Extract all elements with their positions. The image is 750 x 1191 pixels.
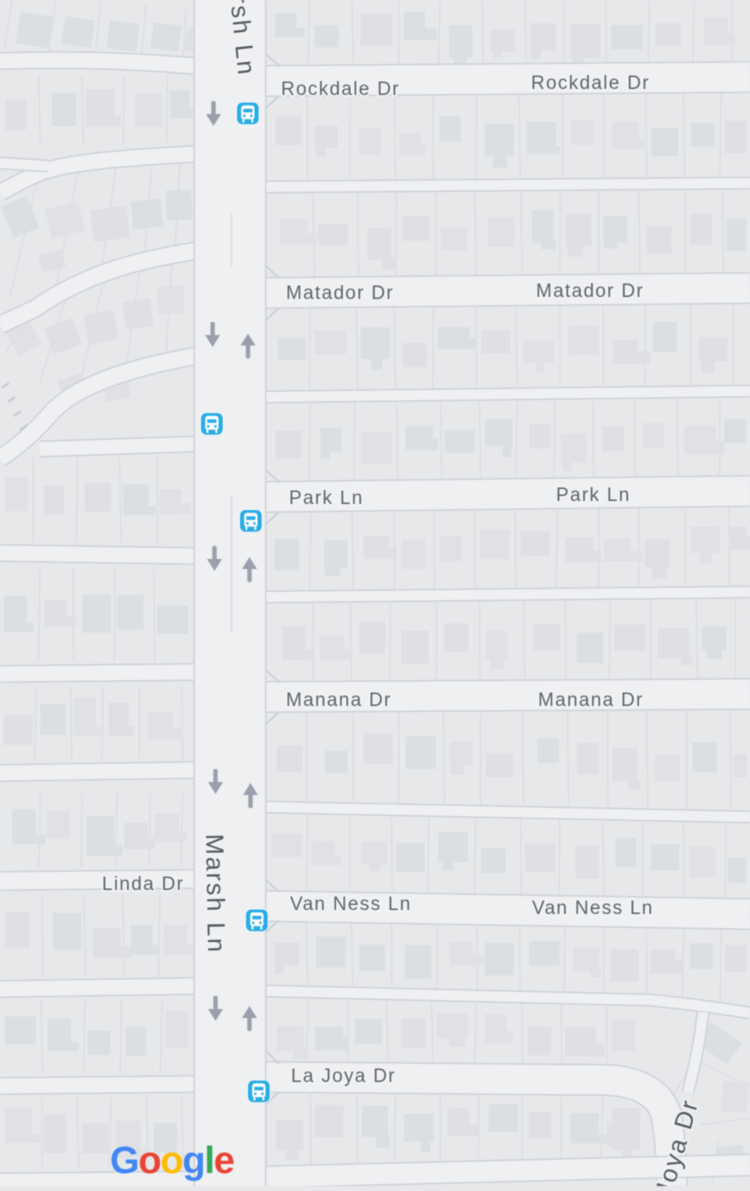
svg-text:Rockdale Dr: Rockdale Dr: [281, 79, 400, 100]
svg-text:La Joya Dr: La Joya Dr: [291, 1066, 396, 1087]
svg-text:Park Ln: Park Ln: [289, 488, 364, 509]
svg-text:Rockdale Dr: Rockdale Dr: [531, 73, 650, 94]
svg-text:Van Ness Ln: Van Ness Ln: [290, 894, 412, 915]
svg-text:Google: Google: [110, 1140, 234, 1182]
svg-text:Matador Dr: Matador Dr: [286, 283, 394, 304]
svg-text:Manana Dr: Manana Dr: [286, 690, 392, 711]
svg-text:Matador Dr: Matador Dr: [536, 281, 644, 302]
svg-text:Linda Dr: Linda Dr: [102, 874, 184, 895]
svg-text:Marsh Ln: Marsh Ln: [200, 834, 230, 955]
svg-text:Park Ln: Park Ln: [556, 485, 631, 506]
svg-text:Manana Dr: Manana Dr: [538, 690, 644, 711]
svg-text:Van Ness Ln: Van Ness Ln: [532, 898, 654, 919]
